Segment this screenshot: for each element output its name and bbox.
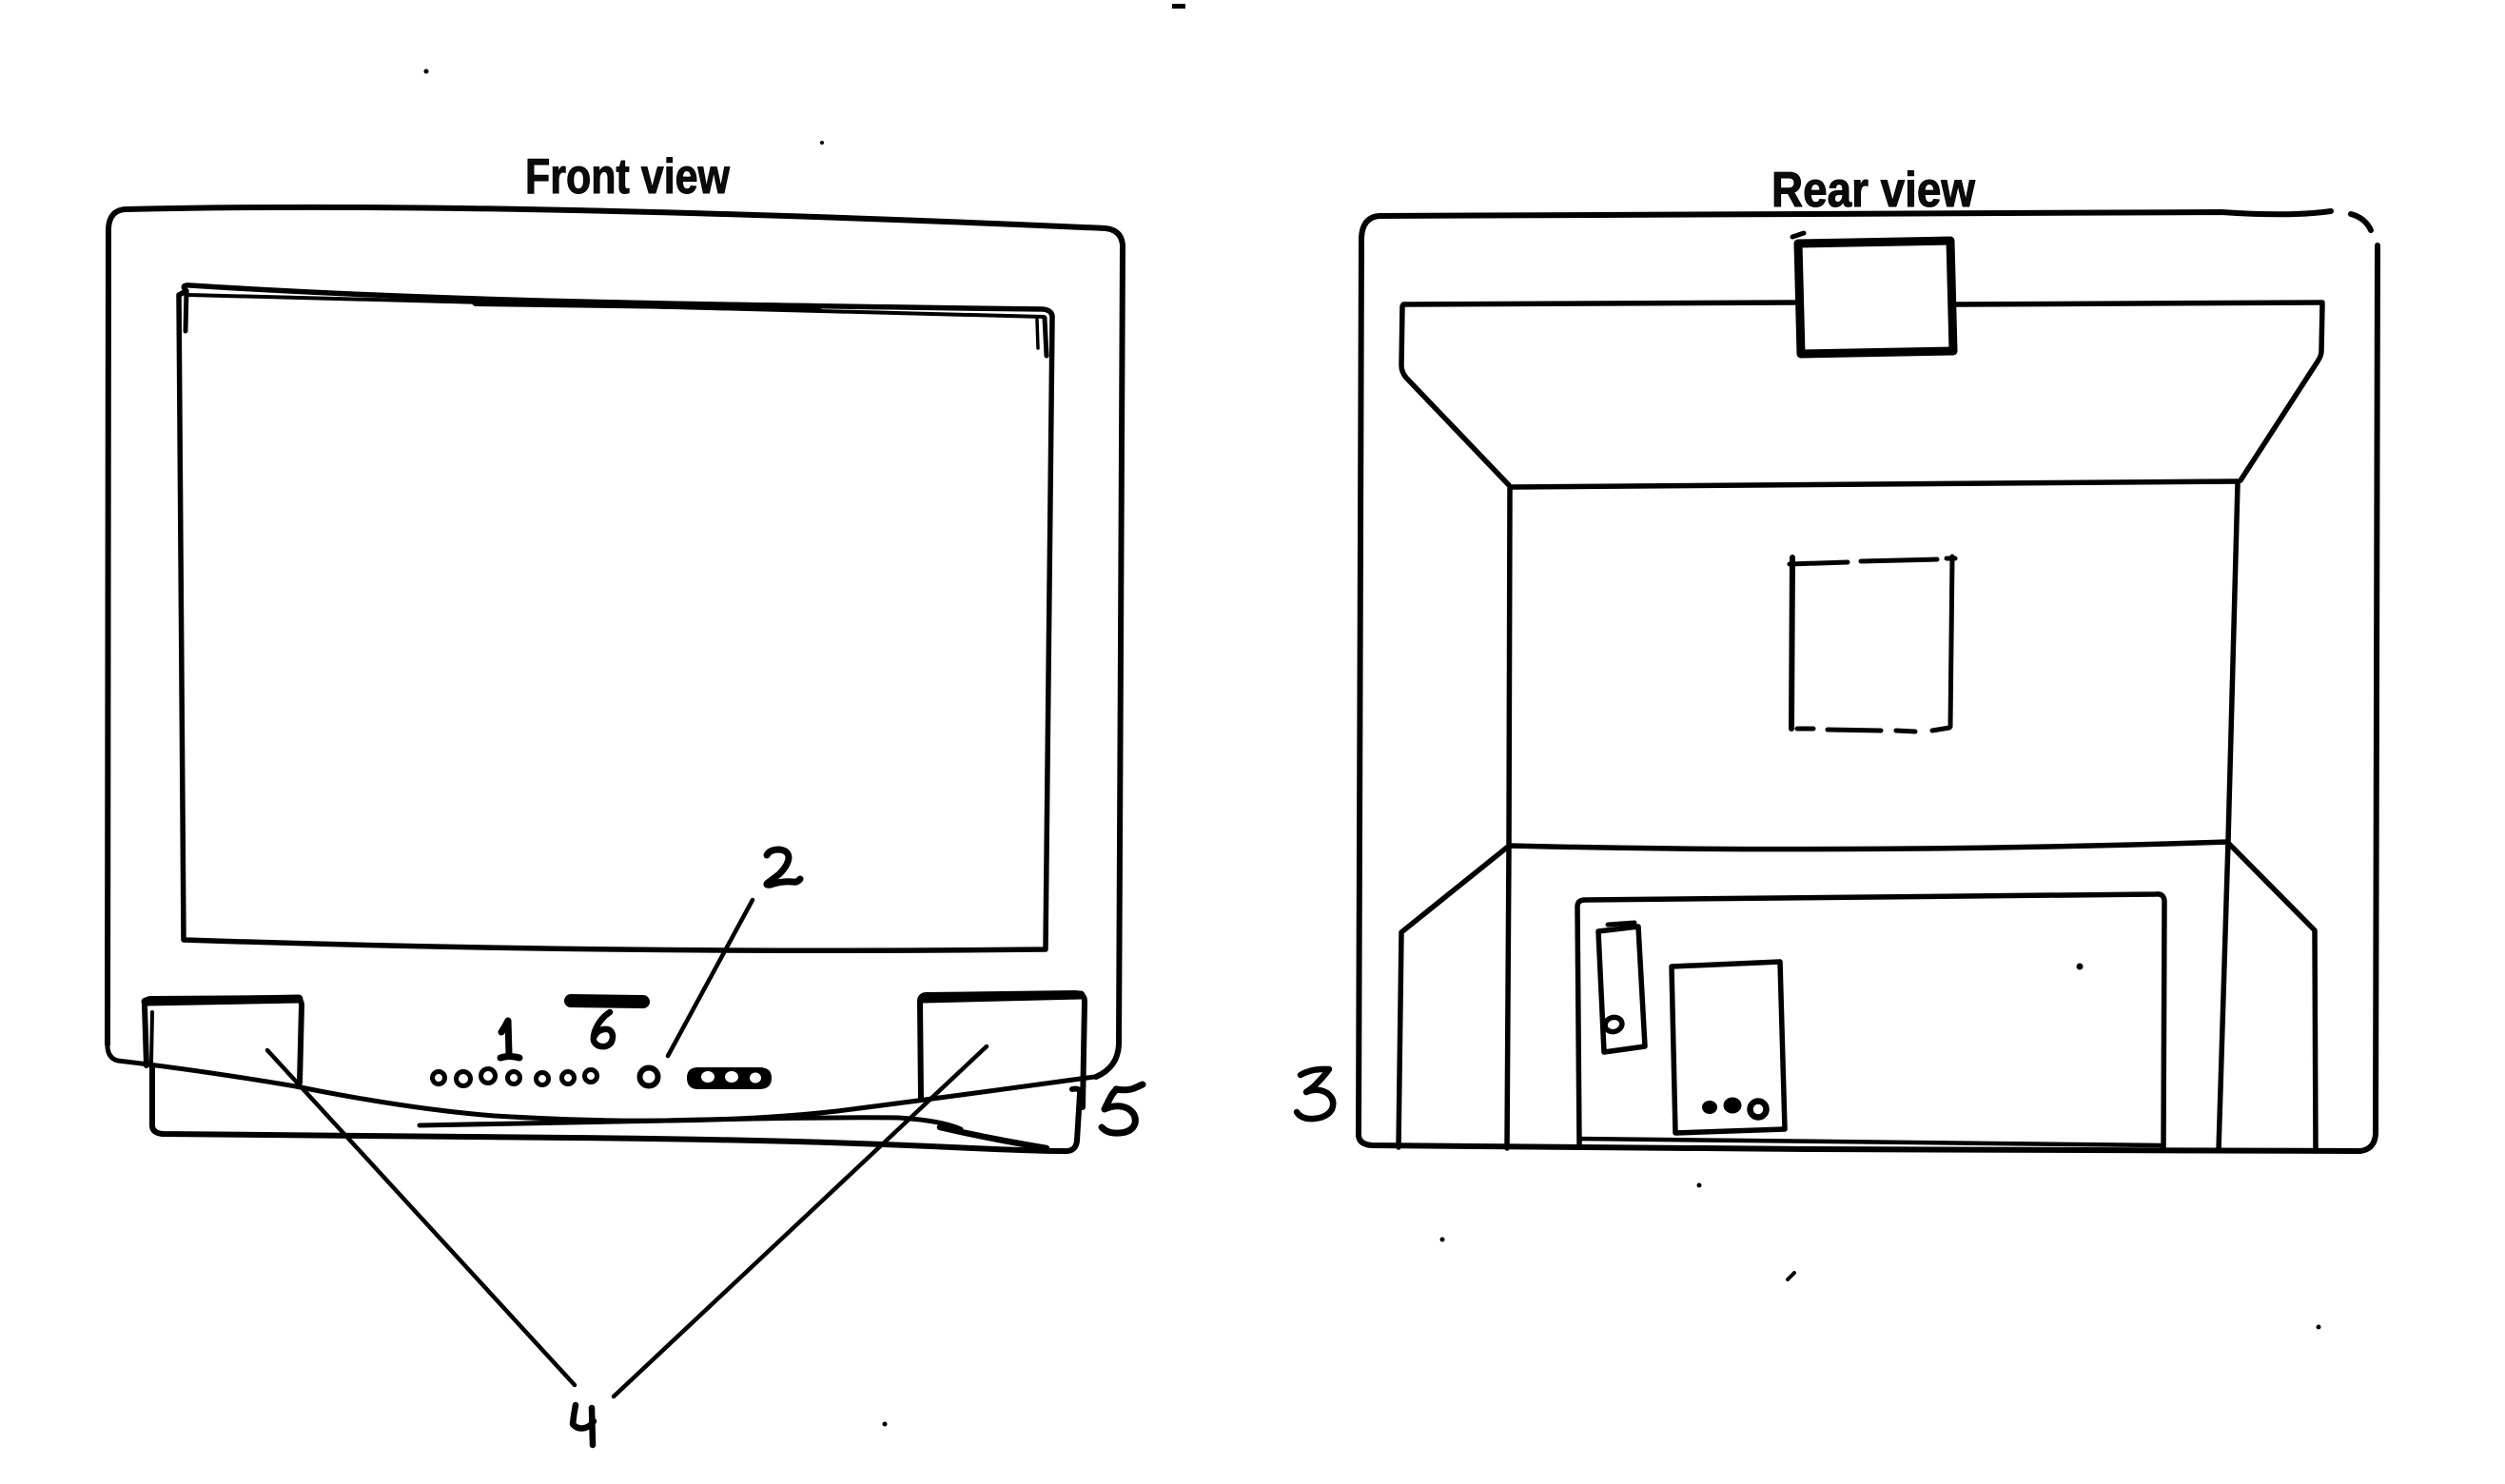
svg-text:Front view: Front view [525, 149, 730, 205]
svg-text:Rear view: Rear view [1771, 163, 1975, 218]
